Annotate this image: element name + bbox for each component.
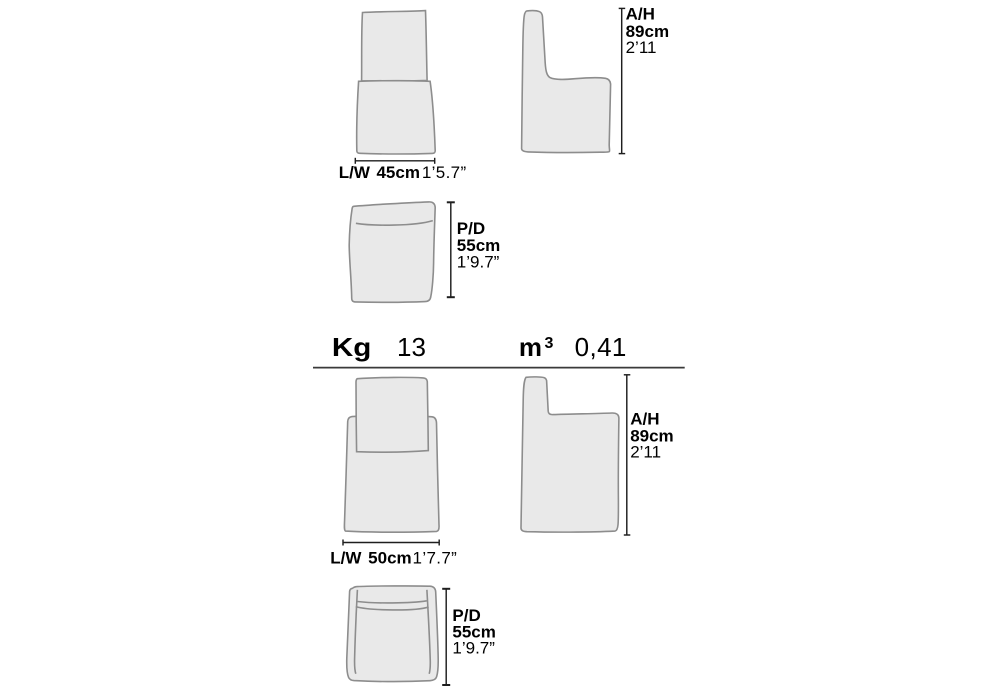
- svg-text:2’11: 2’11: [630, 443, 661, 462]
- svg-text:L/W50cm1’7.7”: L/W50cm1’7.7”: [330, 549, 457, 568]
- svg-text:A/H: A/H: [630, 409, 659, 428]
- svg-text:2’11: 2’11: [626, 38, 657, 57]
- svg-text:1’9.7”: 1’9.7”: [452, 639, 495, 658]
- svg-text:1’9.7”: 1’9.7”: [457, 253, 500, 272]
- svg-text:L/W45cm1’5.7”: L/W45cm1’5.7”: [339, 163, 467, 182]
- svg-text:m3: m3: [519, 332, 554, 362]
- svg-text:A/H: A/H: [626, 5, 655, 24]
- svg-text:13: 13: [397, 332, 426, 362]
- svg-text:Kg: Kg: [332, 332, 372, 362]
- svg-text:0,41: 0,41: [575, 332, 627, 362]
